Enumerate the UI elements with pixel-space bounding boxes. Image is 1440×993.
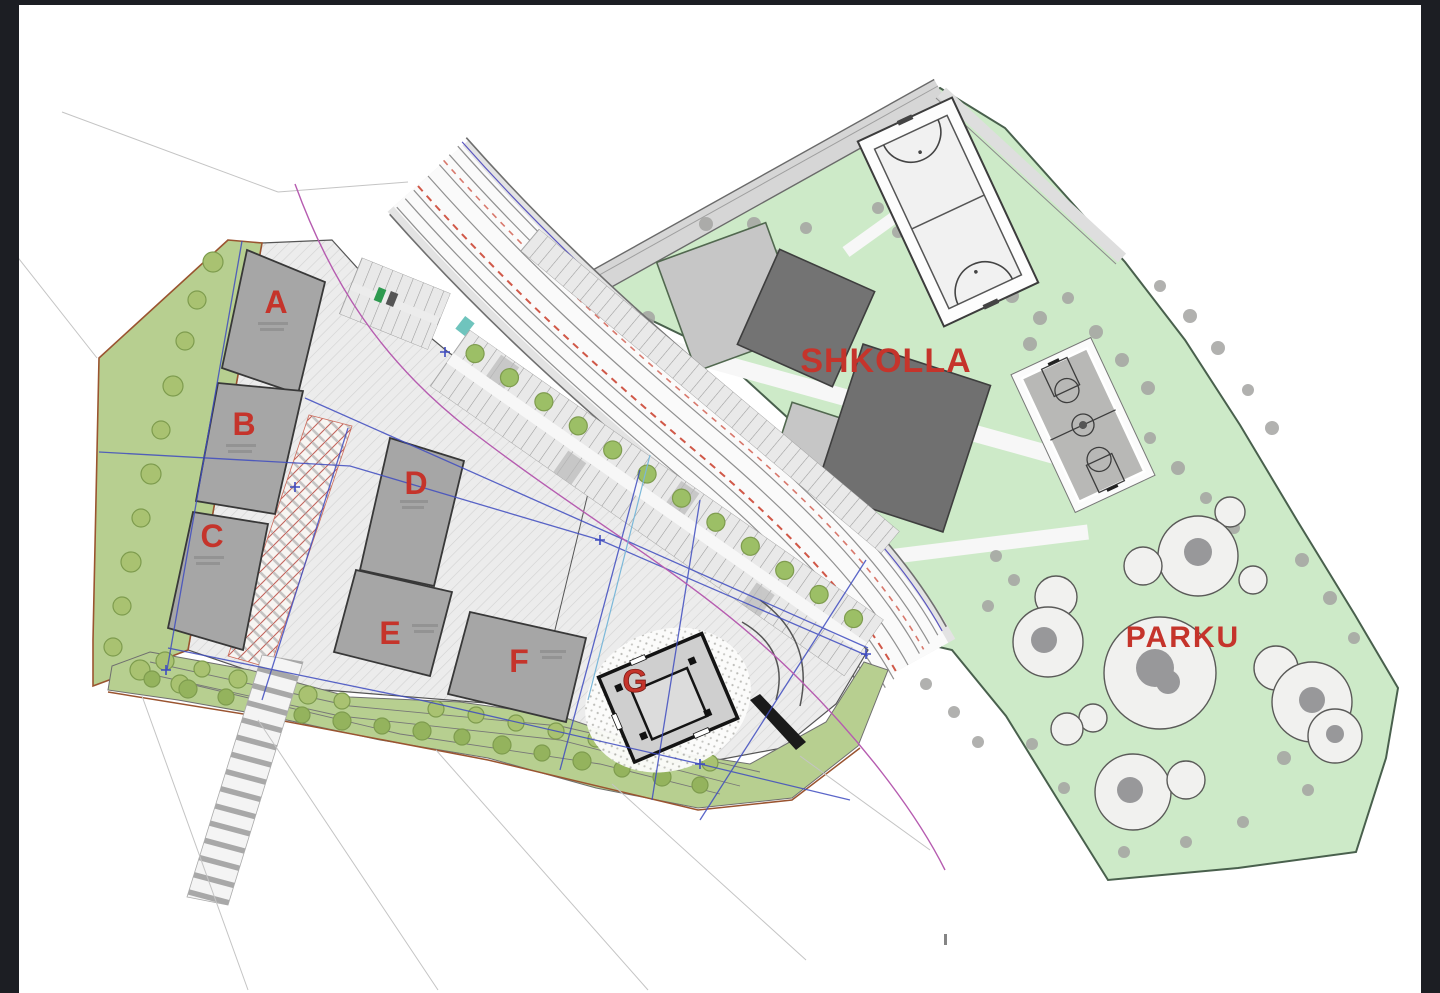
letterbox-top xyxy=(0,0,1440,5)
building-f-label: F xyxy=(509,643,529,679)
park-zone-label: PARKU xyxy=(1126,621,1240,654)
letterbox-left xyxy=(0,0,19,993)
site-plan-canvas: A B C D E F G SHKOLLA PARKU xyxy=(0,0,1440,993)
stray-tick-mark xyxy=(944,934,947,945)
building-c-label: C xyxy=(200,518,223,554)
building-a-label: A xyxy=(264,284,287,320)
school-zone-label: SHKOLLA xyxy=(800,342,971,380)
building-g-label: G xyxy=(623,663,648,699)
letterbox-right xyxy=(1421,0,1440,993)
building-b-label: B xyxy=(232,406,255,442)
building-e-label: E xyxy=(379,615,400,651)
site-plan-drawing: A B C D E F G SHKOLLA PARKU xyxy=(0,0,1440,993)
building-d-label: D xyxy=(404,465,427,501)
